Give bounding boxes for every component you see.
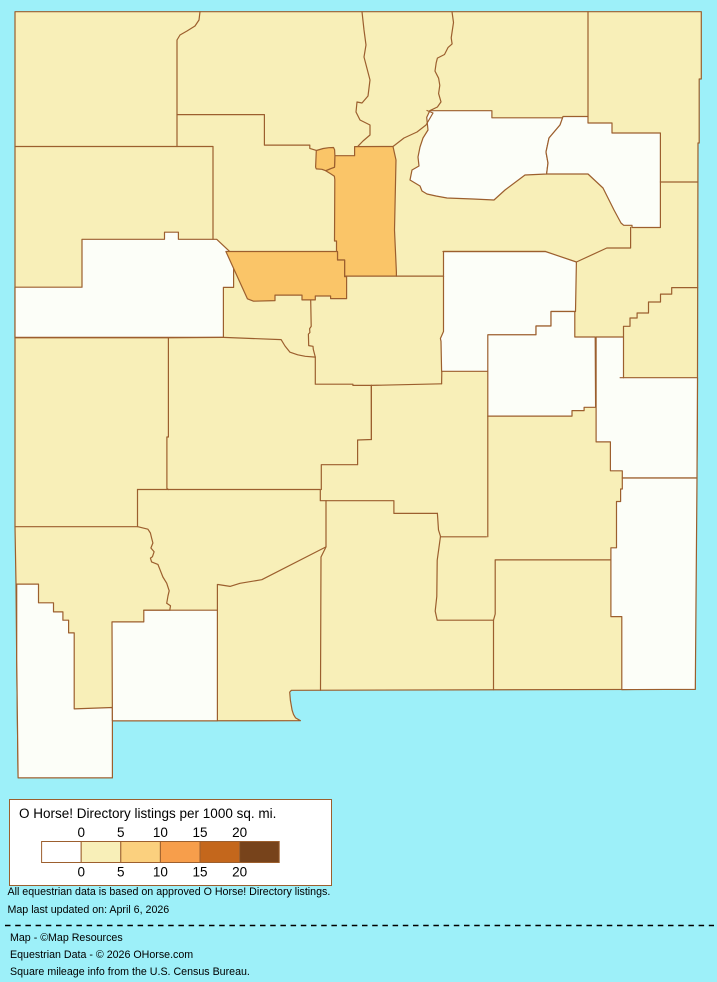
svg-text:10: 10 — [153, 865, 168, 880]
svg-text:5: 5 — [117, 825, 125, 840]
svg-text:5: 5 — [117, 865, 125, 880]
svg-text:20: 20 — [232, 825, 247, 840]
svg-text:0: 0 — [77, 865, 85, 880]
svg-text:20: 20 — [232, 865, 247, 880]
svg-text:0: 0 — [77, 825, 85, 840]
svg-text:15: 15 — [192, 865, 207, 880]
svg-text:10: 10 — [153, 825, 168, 840]
svg-text:15: 15 — [192, 825, 207, 840]
